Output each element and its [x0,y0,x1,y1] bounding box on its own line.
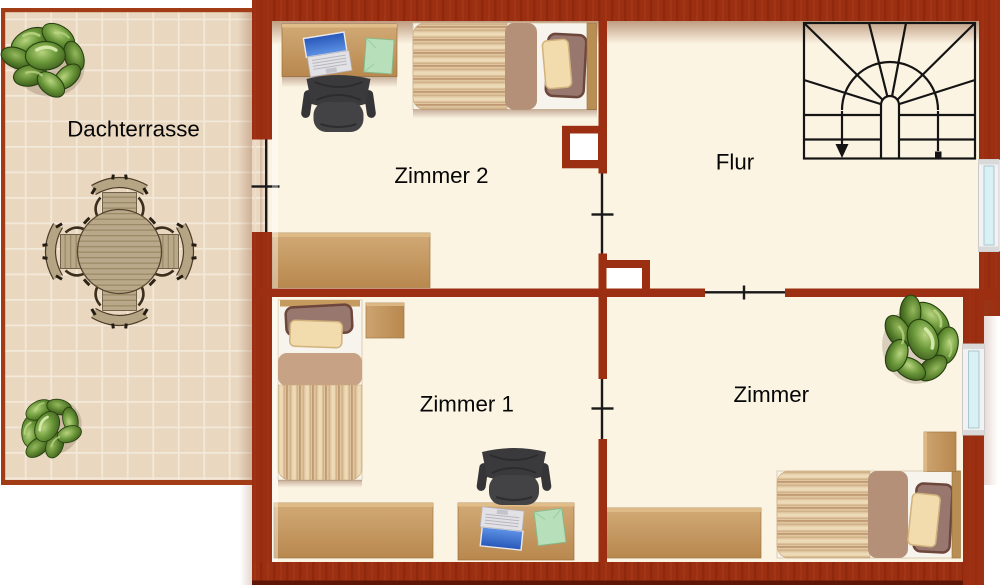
svg-text:Dachterrasse: Dachterrasse [67,117,200,142]
svg-text:Flur: Flur [716,150,755,175]
svg-text:Zimmer 2: Zimmer 2 [394,163,488,188]
svg-text:Zimmer: Zimmer [734,382,810,407]
svg-text:Zimmer 1: Zimmer 1 [420,391,514,416]
